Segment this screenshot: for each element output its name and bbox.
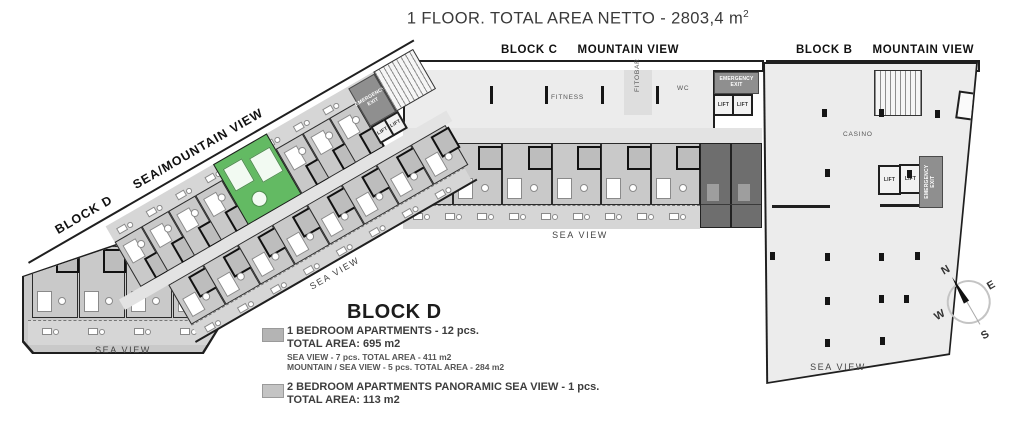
column	[825, 169, 830, 177]
balcony-furniture	[552, 214, 558, 220]
table	[679, 184, 687, 192]
sea-view-label-block-b: SEA VIEW	[793, 362, 883, 372]
balcony-furniture	[488, 214, 494, 220]
floor-plan: 1 FLOOR. TOTAL AREA NETTO - 2803,4 m2 BL…	[0, 0, 1024, 423]
block-b-header: BLOCK B MOUNTAIN VIEW	[790, 44, 980, 56]
legend-heading: BLOCK D	[347, 301, 442, 324]
legend-1br-detail-mountain: MOUNTAIN / SEA VIEW - 5 pcs. TOTAL AREA …	[287, 362, 504, 372]
legend-1br-detail-sea: SEA VIEW - 7 pcs. TOTAL AREA - 411 m2	[287, 352, 451, 362]
balcony-furniture	[616, 214, 622, 220]
legend-2br-total: TOTAL AREA: 113 m2	[287, 394, 400, 406]
emergency-exit-label: EMERGENCY EXIT	[714, 72, 759, 94]
fitobar-room: FITOBAR	[624, 70, 652, 115]
legend-swatch-2br	[262, 384, 284, 398]
table	[305, 231, 316, 242]
column	[770, 252, 775, 260]
wc-label: WC	[677, 85, 689, 92]
title-superscript: 2	[743, 9, 749, 20]
bathroom	[577, 146, 602, 170]
table	[409, 171, 420, 182]
legend-1br-title: 1 BEDROOM APARTMENTS - 12 pcs.	[287, 325, 479, 337]
block-b-name: BLOCK B	[796, 44, 853, 56]
legend-1br-total: TOTAL AREA: 695 m2	[287, 338, 400, 350]
column	[601, 86, 604, 104]
column	[545, 86, 548, 104]
balcony-furniture	[584, 214, 590, 220]
column	[490, 86, 493, 104]
bed	[656, 178, 671, 199]
column	[879, 295, 884, 303]
bathroom	[676, 146, 701, 170]
table	[443, 151, 454, 162]
column	[656, 86, 659, 104]
balcony-furniture	[520, 214, 526, 220]
block-c-view-label: MOUNTAIN VIEW	[578, 44, 680, 56]
balcony-furniture	[605, 213, 615, 220]
page-title: 1 FLOOR. TOTAL AREA NETTO - 2803,4 m2	[368, 9, 788, 29]
column	[825, 339, 830, 347]
column	[879, 109, 884, 117]
lift-label: LIFT	[732, 94, 753, 116]
column	[904, 295, 909, 303]
apartment-unit	[601, 143, 651, 205]
compass-south-label: S	[979, 328, 991, 342]
legend-swatch-1br	[262, 328, 284, 342]
block-c-dark-apartments	[700, 143, 762, 228]
lift-label: LIFT	[713, 94, 734, 116]
bed	[707, 184, 719, 201]
wall-segment	[730, 144, 732, 227]
bed	[606, 178, 621, 199]
bed	[738, 184, 750, 201]
balcony-furniture	[541, 213, 551, 220]
sea-view-label-block-c: SEA VIEW	[535, 230, 625, 240]
table	[580, 184, 588, 192]
table	[629, 184, 637, 192]
column	[915, 252, 920, 260]
apartment-unit	[651, 143, 701, 205]
bed	[557, 178, 572, 199]
apartment-unit	[552, 143, 602, 205]
column	[822, 109, 827, 117]
balcony-furniture	[53, 329, 59, 335]
balcony-furniture	[669, 213, 679, 220]
balcony-furniture	[680, 214, 686, 220]
column	[879, 253, 884, 261]
table	[270, 251, 281, 262]
table	[339, 211, 350, 222]
column	[825, 253, 830, 261]
column	[825, 297, 830, 305]
legend-2br-title: 2 BEDROOM APARTMENTS PANORAMIC SEA VIEW …	[287, 381, 599, 393]
column	[935, 110, 940, 118]
compass-north-label: N	[939, 263, 952, 277]
table	[201, 291, 212, 302]
block-b-view-label: MOUNTAIN VIEW	[873, 44, 975, 56]
table	[374, 191, 385, 202]
bed	[507, 178, 522, 199]
balcony-furniture	[509, 213, 519, 220]
bathroom	[627, 146, 652, 170]
block-c-name: BLOCK C	[501, 44, 558, 56]
table	[235, 271, 246, 282]
column	[907, 170, 912, 178]
balcony-furniture	[42, 328, 52, 335]
balcony-furniture	[477, 213, 487, 220]
balcony-furniture	[648, 214, 654, 220]
bathroom	[528, 146, 553, 170]
fitness-label: FITNESS	[551, 94, 584, 101]
column	[880, 337, 885, 345]
fitobar-label: FITOBAR	[634, 58, 641, 92]
balcony-furniture	[637, 213, 647, 220]
balcony-furniture	[573, 213, 583, 220]
table	[530, 184, 538, 192]
apartment-unit	[502, 143, 552, 205]
balcony-divider	[701, 204, 761, 205]
block-c-header: BLOCK C MOUNTAIN VIEW	[460, 44, 720, 56]
